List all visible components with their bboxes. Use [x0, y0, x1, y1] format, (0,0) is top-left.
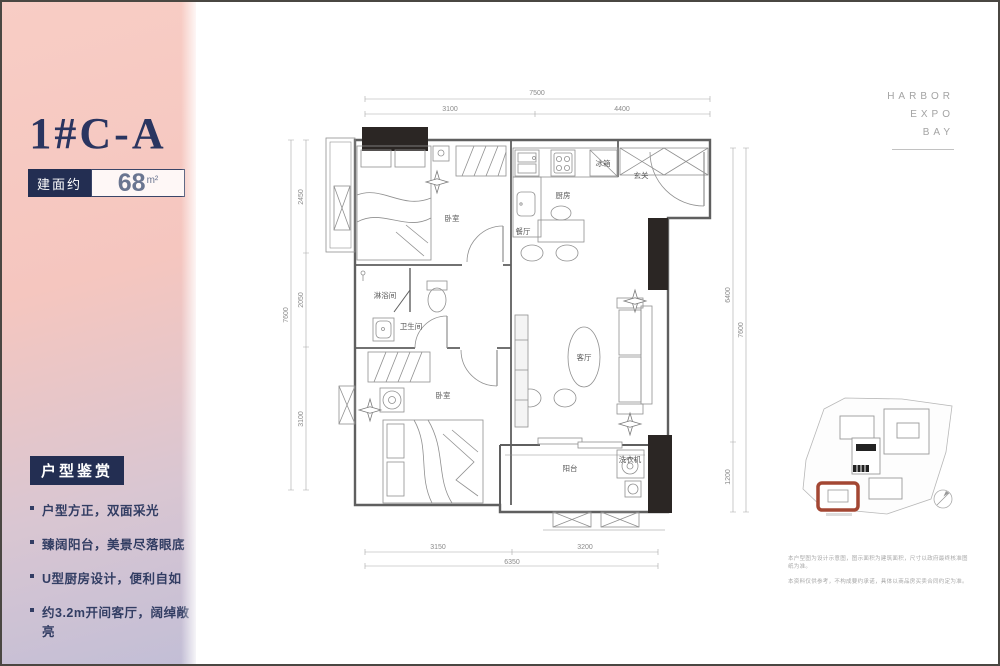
brand-underline: [892, 149, 954, 150]
dim-right-seg1: 6400: [725, 287, 732, 303]
room-label-balcony: 阳台: [563, 463, 578, 473]
washer-label: 洗衣机: [619, 454, 642, 464]
entry-door: [650, 152, 704, 206]
disclaimer-block: 本户型图为设计示意图，图示面积为建筑面积，尺寸以政府最终核准图纸为准。 本资料仅…: [788, 556, 973, 595]
living-furniture: [515, 298, 652, 427]
bay-window: [326, 138, 355, 252]
feature-item: 户型方正，双面采光: [30, 500, 196, 519]
room-label-kitchen: 厨房: [556, 190, 571, 200]
fridge-label: 冰箱: [596, 158, 611, 168]
brand-line: EXPO: [858, 106, 954, 124]
dim-top-seg1: 3100: [442, 106, 458, 113]
unit-title: 1#C-A: [0, 108, 196, 159]
room-label-entry: 玄关: [634, 170, 649, 180]
area-value: 68: [118, 170, 146, 196]
floor-plan: 7500 3100 4400 7600 2450 2050 3100 6400 …: [278, 85, 773, 600]
dim-left-seg2: 2050: [298, 292, 305, 308]
left-panel: 1#C-A 建面约 68 m² 户型鉴赏 户型方正，双面采光 臻阔阳台，美景尽落…: [0, 0, 196, 666]
area-row: 建面约 68 m²: [28, 169, 185, 197]
ac-icon: [624, 290, 646, 312]
dining-set: [519, 206, 584, 407]
ac-icon: [426, 171, 448, 193]
bedroom1-furniture: [357, 146, 506, 260]
area-unit: m²: [147, 175, 159, 186]
highlighted-building: [818, 483, 858, 516]
room-label-bedroom2: 卧室: [436, 390, 451, 400]
poster-page: 1#C-A 建面约 68 m² 户型鉴赏 户型方正，双面采光 臻阔阳台，美景尽落…: [0, 0, 1000, 666]
feature-item: 约3.2m开间客厅，阔绰敞亮: [30, 602, 196, 640]
dim-bottom-total: 6350: [504, 559, 520, 566]
brand-line: BAY: [858, 124, 954, 142]
bullet-icon: [30, 608, 34, 612]
brand-block: HARBOR EXPO BAY: [858, 88, 954, 150]
room-label-dining: 餐厅: [516, 227, 531, 236]
bedroom2-window: [339, 386, 355, 424]
room-label-bedroom1: 卧室: [445, 213, 460, 223]
bedroom1-door: [467, 226, 503, 262]
section-title-badge: 户型鉴赏: [30, 456, 124, 485]
dim-left-seg1: 2450: [298, 189, 305, 205]
disclaimer-line: 本户型图为设计示意图，图示面积为建筑面积，尺寸以政府最终核准图纸为准。: [788, 556, 973, 571]
dim-left-seg3: 3100: [298, 411, 305, 427]
feature-list: 户型方正，双面采光 臻阔阳台，美景尽落眼底 U型厨房设计，便利自如 约3.2m开…: [30, 500, 196, 655]
room-label-bathroom: 卫生间: [400, 321, 423, 331]
bullet-icon: [30, 574, 34, 578]
bedroom2-door: [461, 350, 497, 386]
dim-bottom-seg2: 3200: [577, 544, 593, 551]
bedroom2-furniture: [368, 352, 483, 503]
site-plan: [795, 385, 975, 530]
dim-top-total: 7500: [529, 90, 545, 97]
disclaimer-line: 本资料仅供参考，不构成要约承诺，具体以商品房买卖合同约定为准。: [788, 579, 973, 587]
dim-left-total: 7600: [283, 307, 290, 323]
bullet-icon: [30, 540, 34, 544]
room-label-living: 客厅: [577, 352, 592, 362]
ac-icon: [619, 413, 641, 435]
bullet-icon: [30, 506, 34, 510]
area-value-box: 68 m²: [91, 169, 185, 197]
area-label-badge: 建面约: [28, 169, 91, 197]
bathroom-door: [415, 316, 447, 348]
dim-bottom-seg1: 3150: [430, 544, 446, 551]
ac-icon: [359, 399, 381, 421]
feature-item: 臻阔阳台，美景尽落眼底: [30, 534, 196, 553]
feature-item: U型厨房设计，便利自如: [30, 568, 196, 587]
dim-right-total: 7600: [738, 322, 745, 338]
dim-top-seg2: 4400: [614, 106, 630, 113]
compass-icon: [934, 490, 952, 508]
dim-right-seg2: 1200: [725, 469, 732, 485]
room-label-shower: 淋浴间: [374, 290, 397, 300]
brand-line: HARBOR: [858, 88, 954, 106]
balcony-slider-door: [538, 438, 622, 448]
